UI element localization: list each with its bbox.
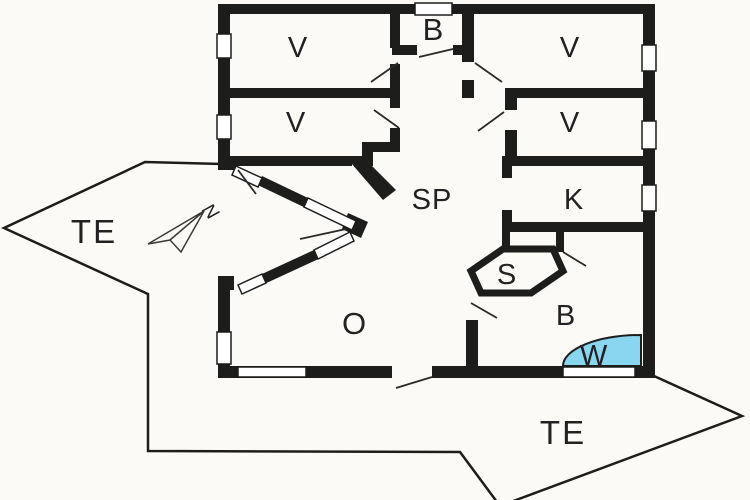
- plan-background: [0, 0, 750, 500]
- label-terrace-south: TE: [540, 414, 586, 451]
- room-label-living: O: [342, 306, 366, 341]
- room-label-bedroom-w: V: [286, 107, 306, 139]
- room-label-hall: SP: [412, 184, 453, 216]
- label-terrace-west: TE: [71, 213, 117, 250]
- room-label-bedroom-nw: V: [288, 32, 308, 64]
- room-label-sauna: S: [497, 259, 517, 291]
- room-label-bath-small: B: [423, 12, 444, 47]
- floor-plan-canvas: N V V B V V SP K S B W O TE TE: [0, 0, 750, 500]
- door-opening: [392, 366, 432, 378]
- floor-plan-page: N V V B V V SP K S B W O TE TE: [0, 0, 750, 500]
- room-label-bathroom: B: [556, 300, 576, 332]
- room-label-bedroom-e: V: [560, 107, 580, 139]
- room-label-whirlpool: W: [580, 340, 608, 372]
- room-label-bedroom-ne: V: [560, 32, 580, 64]
- room-label-kitchen: K: [564, 184, 584, 216]
